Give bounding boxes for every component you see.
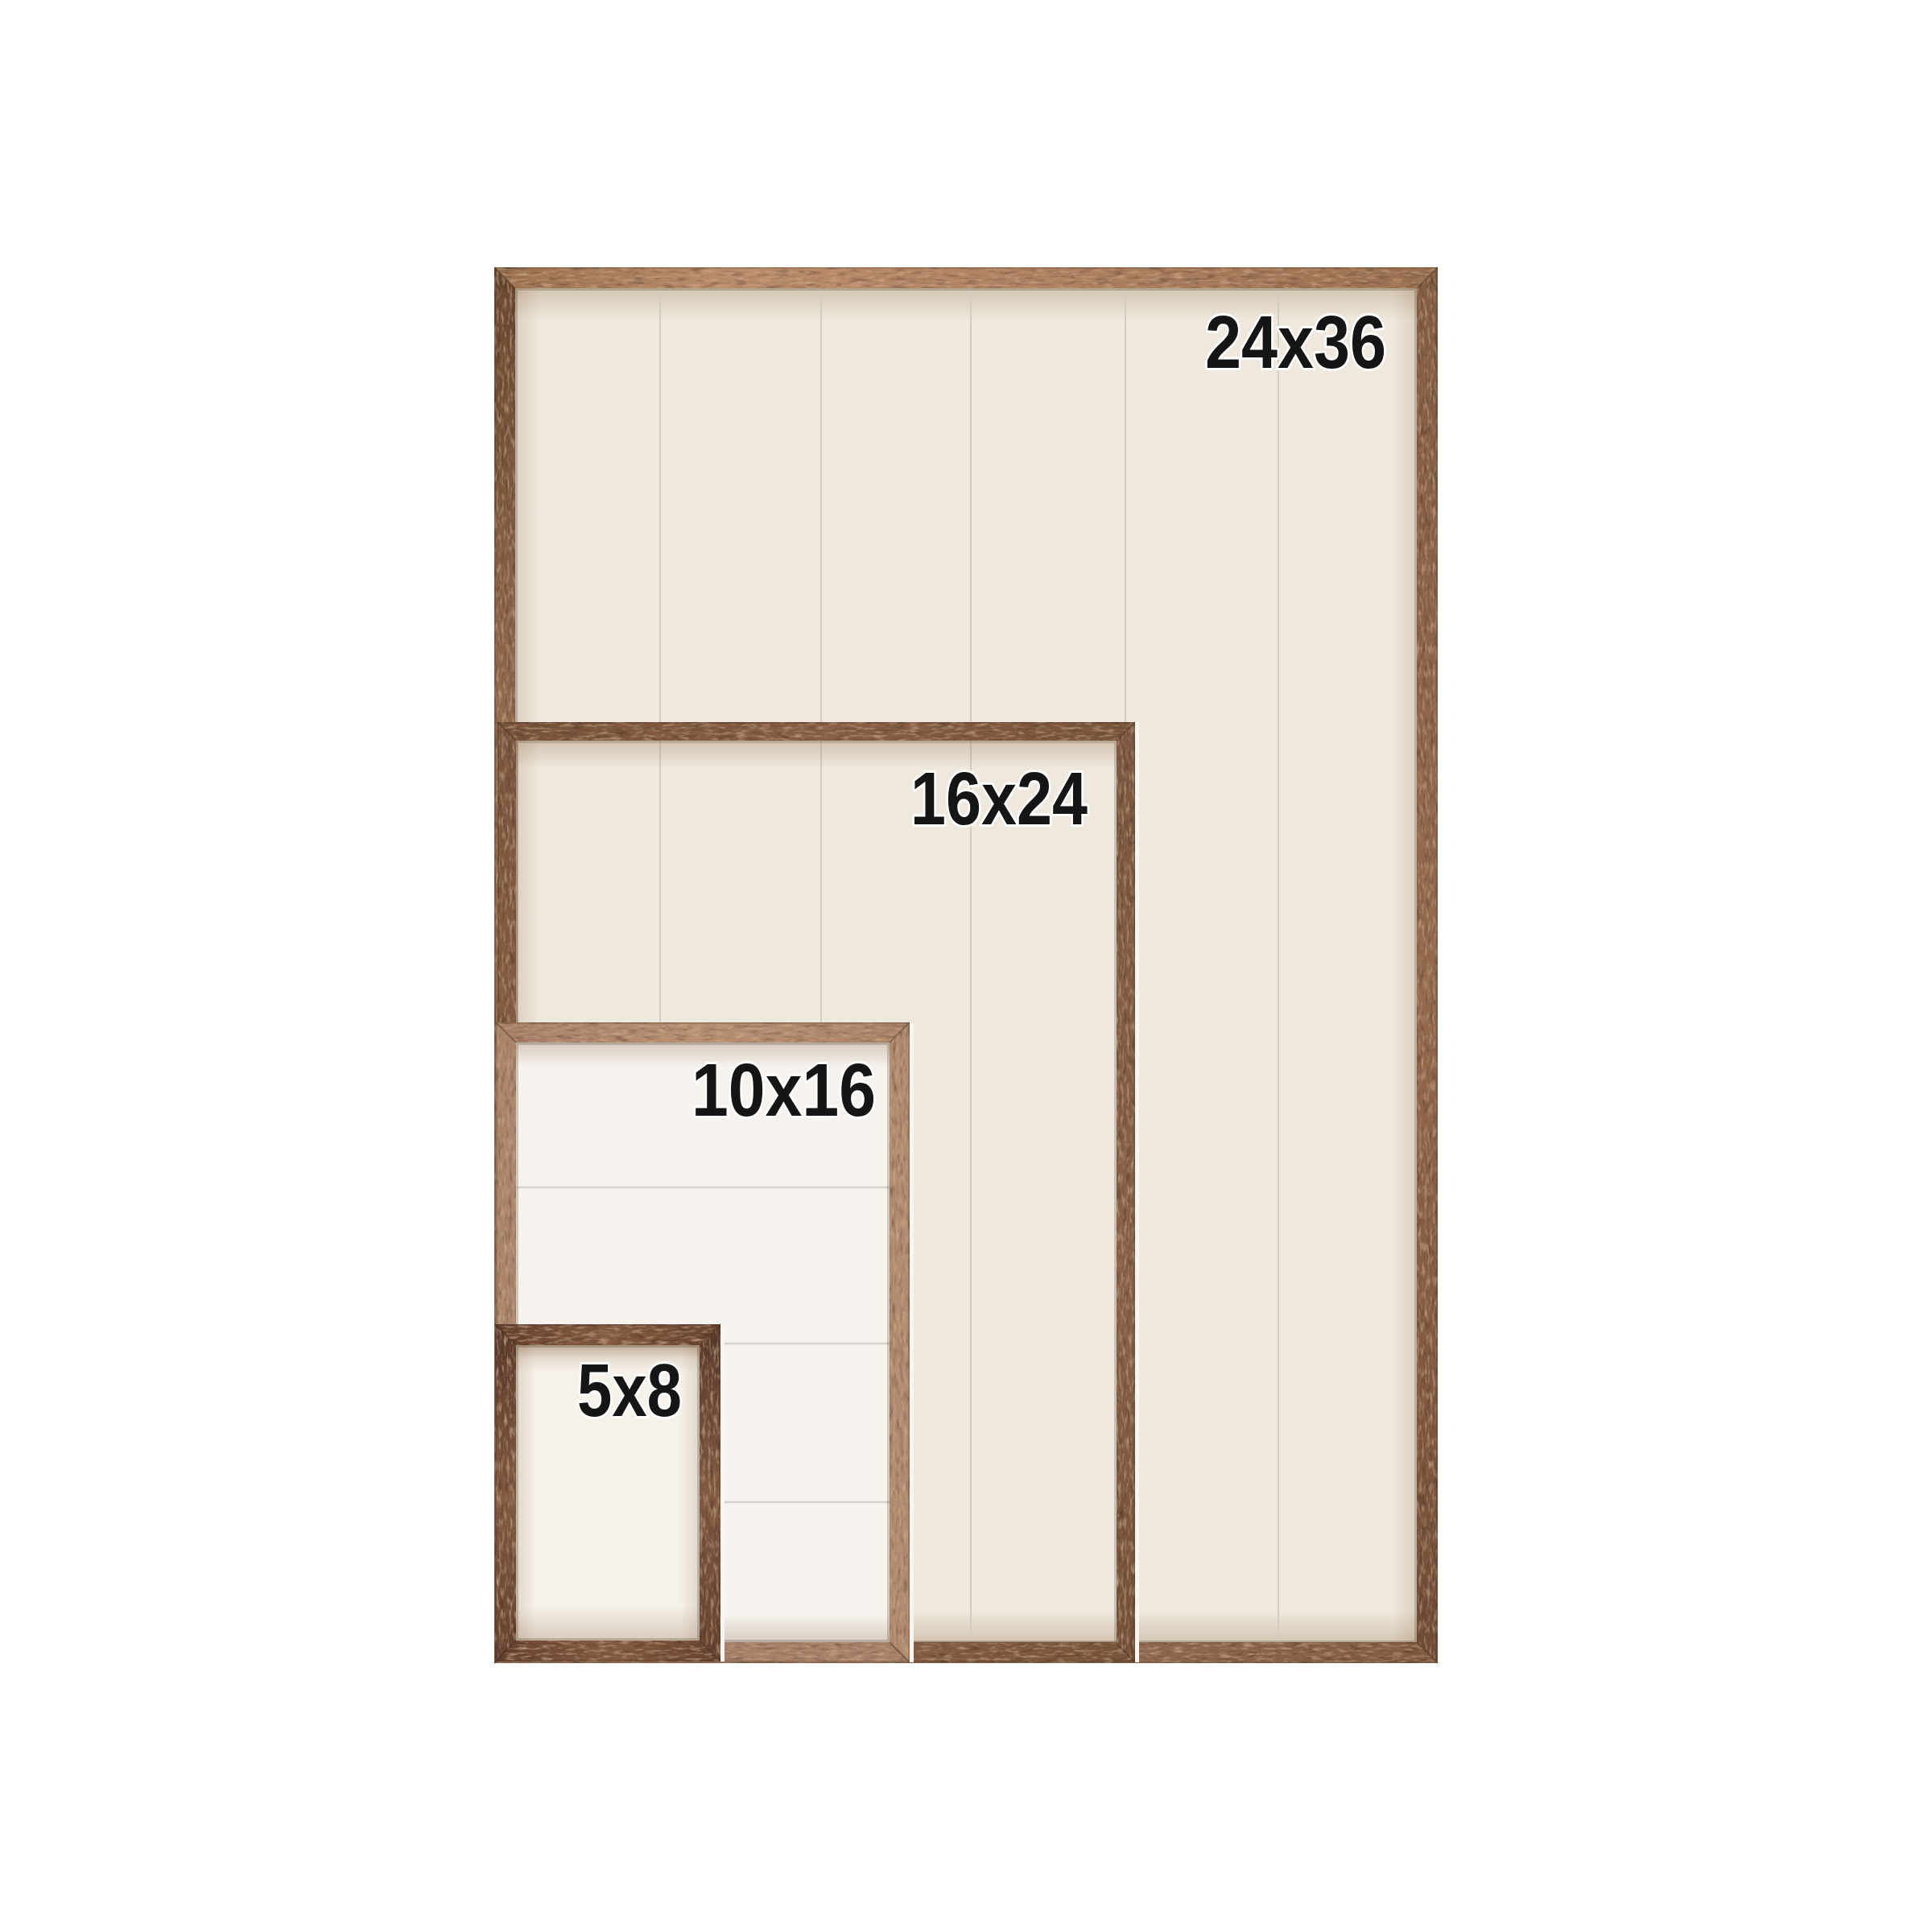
svg-text:16x24: 16x24 bbox=[910, 757, 1088, 840]
svg-text:10x16: 10x16 bbox=[691, 1048, 876, 1132]
svg-text:24x36: 24x36 bbox=[1205, 300, 1386, 384]
svg-text:5x8: 5x8 bbox=[577, 1348, 682, 1432]
